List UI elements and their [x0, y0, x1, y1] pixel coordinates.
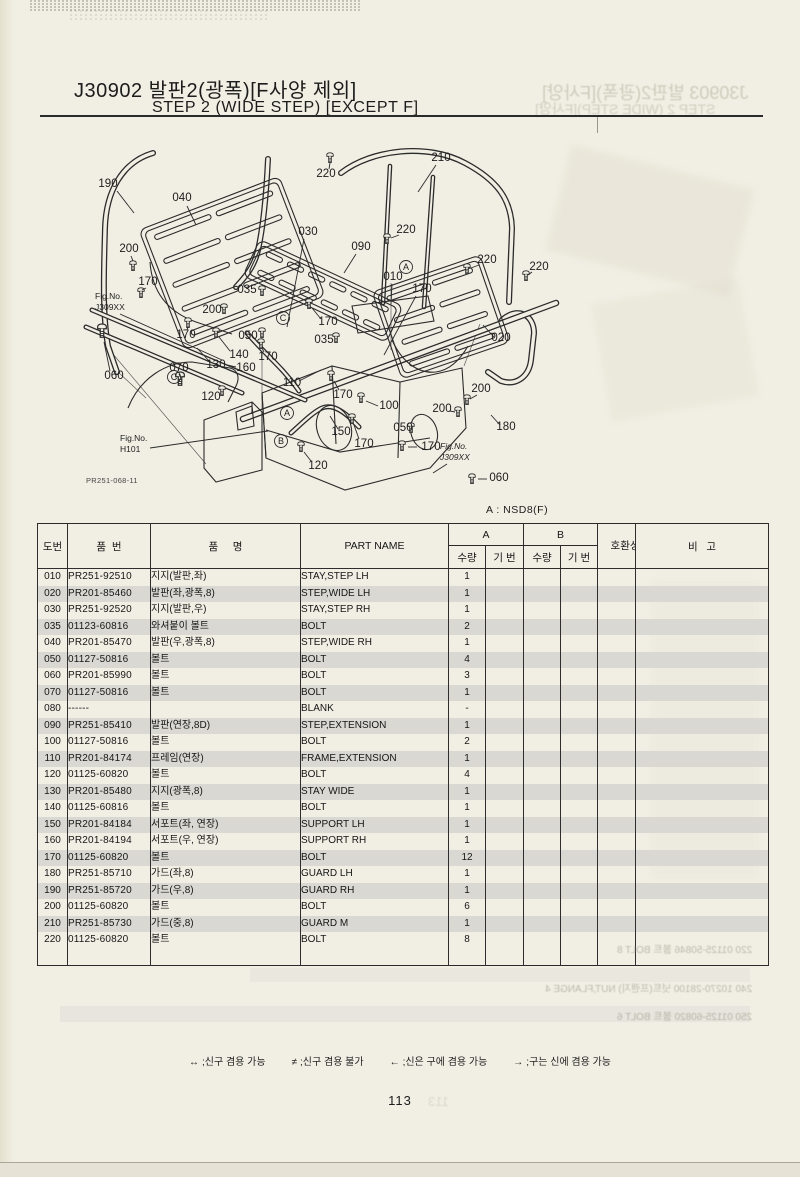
part-label: 050 — [238, 330, 257, 342]
cell-name-kr: 지지(발판,우) — [151, 602, 301, 619]
bolt-icon — [327, 153, 333, 163]
cell-part-name: FRAME,EXTENSION — [301, 751, 449, 768]
svg-text:H101: H101 — [120, 444, 141, 454]
svg-text:Fig.No.: Fig.No. — [440, 441, 467, 451]
legend-item: →;구는 신에 겸용 가능 — [513, 1053, 611, 1068]
frame-extension-110 — [236, 303, 556, 430]
cell-serial-a — [486, 619, 524, 636]
cell-qty-a: 1 — [449, 883, 486, 900]
cell-compat — [598, 866, 636, 883]
part-label: 200 — [471, 383, 490, 395]
drawing-number: PR251-068-11 — [86, 476, 138, 485]
cell-qty-b — [524, 685, 561, 702]
table-row: 03501123-60816와셔붙이 볼트BOLT2 — [38, 619, 769, 636]
col-header-serial-a: 기 번 — [486, 546, 524, 569]
cell-serial-a — [486, 767, 524, 784]
cell-part-no: PR201-85460 — [68, 586, 151, 603]
table-row: 10001127-50816볼트BOLT2 — [38, 734, 769, 751]
leader-line — [391, 235, 399, 238]
leader-line — [299, 370, 321, 381]
cell-compat — [598, 619, 636, 636]
cell-no: 160 — [38, 833, 68, 850]
cell-name-kr: 가드(우,8) — [151, 883, 301, 900]
cell-serial-b — [561, 916, 598, 933]
part-label: 050 — [393, 422, 412, 434]
cell-name-kr: 서포트(우, 연장) — [151, 833, 301, 850]
part-label: 170 — [412, 283, 431, 295]
cell-no: 120 — [38, 767, 68, 784]
table-row: 110PR201-84174프레임(연장)FRAME,EXTENSION1 — [38, 751, 769, 768]
cell-qty-b — [524, 586, 561, 603]
cell-serial-a — [486, 883, 524, 900]
col-header-qty-a: 수량 — [449, 546, 486, 569]
legend-item: ≠;신구 겸용 불가 — [292, 1053, 364, 1068]
cell-qty-b — [524, 734, 561, 751]
col-header-group-a: A — [449, 524, 524, 546]
cell-remark — [636, 866, 769, 883]
compatibility-legend: ↔;신구 겸용 가능≠;신구 겸용 불가←;신은 구에 겸용 가능→;구는 신에… — [0, 1053, 800, 1068]
cell-part-name: GUARD LH — [301, 866, 449, 883]
svg-text:B: B — [278, 436, 284, 446]
part-label: 220 — [396, 224, 415, 236]
cell-compat — [598, 784, 636, 801]
cell-compat — [598, 883, 636, 900]
cell-qty-b — [524, 784, 561, 801]
cell-name-kr: 볼트 — [151, 734, 301, 751]
svg-text:Fig.No.: Fig.No. — [95, 291, 122, 301]
bolt-icon — [464, 264, 470, 274]
cell-serial-a — [486, 602, 524, 619]
col-header-name-kr: 품 명 — [151, 524, 301, 569]
leader-line — [366, 401, 378, 406]
leader-line — [471, 265, 479, 268]
connector-mark: A — [400, 261, 413, 274]
cell-serial-b — [561, 817, 598, 834]
cell-name-kr: 볼트 — [151, 932, 301, 949]
cell-serial-b — [561, 586, 598, 603]
catalog-page: J30903 발판2(광폭)[F사양] STEP 2 (WIDE STEP)[F… — [0, 0, 800, 1177]
connector-mark: C — [168, 371, 181, 384]
cell-remark — [636, 652, 769, 669]
cell-remark — [636, 668, 769, 685]
col-header-compat: 호환성 — [598, 524, 636, 569]
cell-serial-a — [486, 718, 524, 735]
cell-part-name: BOLT — [301, 850, 449, 867]
parts-table: 도번 품 번 품 명 PART NAME A B 호환성 비 고 수량 기 번 … — [37, 523, 769, 966]
table-row: 17001125-60820볼트BOLT12 — [38, 850, 769, 867]
cell-part-name: STAY WIDE — [301, 784, 449, 801]
cell-compat — [598, 734, 636, 751]
cell-no: 050 — [38, 652, 68, 669]
cell-qty-a: 4 — [449, 767, 486, 784]
svg-text:J309XX: J309XX — [95, 302, 125, 312]
part-label: 170 — [138, 276, 157, 288]
leader-line — [179, 374, 180, 376]
bolt-icon — [176, 372, 185, 385]
page-binding-shade — [0, 0, 14, 1177]
cell-part-name: STEP,WIDE LH — [301, 586, 449, 603]
cell-qty-b — [524, 866, 561, 883]
tread-panel — [243, 239, 403, 342]
cell-serial-a — [486, 569, 524, 586]
leader-line — [131, 256, 133, 261]
table-row: 080------BLANK- — [38, 701, 769, 718]
col-header-qty-b: 수량 — [524, 546, 561, 569]
step-fender-curves — [150, 262, 468, 372]
cell-qty-a: 1 — [449, 833, 486, 850]
cell-part-name: BOLT — [301, 734, 449, 751]
fig-ref: Fig.No.J309XX — [95, 291, 222, 360]
cell-remark — [636, 800, 769, 817]
cell-name-kr: 가드(중,8) — [151, 916, 301, 933]
cell-part-no: PR201-85480 — [68, 784, 151, 801]
cell-serial-b — [561, 718, 598, 735]
bolt-icon — [306, 299, 312, 309]
cell-remark — [636, 883, 769, 900]
part-label: 190 — [98, 178, 117, 190]
cell-no: 080 — [38, 701, 68, 718]
cell-name-kr: 발판(연장,8D) — [151, 718, 301, 735]
ghost-row: 240 10270-28100 넛트(프랜지) NUT,FLANGE 4 — [545, 980, 752, 995]
cell-name-kr — [151, 701, 301, 718]
cell-qty-b — [524, 701, 561, 718]
leader-line — [262, 348, 264, 352]
cell-serial-b — [561, 800, 598, 817]
svg-text:A: A — [403, 262, 409, 272]
part-label: 200 — [432, 403, 451, 415]
table-row: 090PR251-85410발판(연장,8D)STEP,EXTENSION1 — [38, 718, 769, 735]
chassis-frame-h101 — [128, 362, 466, 490]
leader-line — [329, 163, 330, 169]
cell-part-no: 01123-60816 — [68, 619, 151, 636]
cell-part-no: 01127-50816 — [68, 685, 151, 702]
cell-no: 130 — [38, 784, 68, 801]
part-label: 170 — [318, 316, 337, 328]
cell-serial-a — [486, 899, 524, 916]
svg-text:A: A — [284, 408, 290, 418]
cell-no: 140 — [38, 800, 68, 817]
bolt-icon — [130, 261, 136, 271]
col-header-part-name: PART NAME — [301, 524, 449, 569]
cell-qty-a: 1 — [449, 718, 486, 735]
cell-serial-a — [486, 751, 524, 768]
cell-qty-a: 1 — [449, 817, 486, 834]
part-label: 100 — [379, 400, 398, 412]
cell-part-name: STEP,WIDE RH — [301, 635, 449, 652]
tread-panel — [139, 176, 325, 349]
parts-table-body: 010PR251-92510지지(발판,좌)STAY,STEP LH1020PR… — [38, 569, 769, 966]
cell-part-name: SUPPORT RH — [301, 833, 449, 850]
bolt-icon — [469, 474, 475, 484]
cell-qty-b — [524, 718, 561, 735]
cell-qty-a: 1 — [449, 602, 486, 619]
part-label: 110 — [283, 377, 301, 389]
part-label: 170 — [258, 351, 277, 363]
cell-qty-a: 1 — [449, 635, 486, 652]
bolt-icon — [259, 286, 265, 296]
cell-compat — [598, 668, 636, 685]
cell-name-kr: 볼트 — [151, 850, 301, 867]
cell-no: 100 — [38, 734, 68, 751]
bolt-icon — [358, 393, 364, 403]
cell-name-kr: 지지(발판,좌) — [151, 569, 301, 586]
part-label: 120 — [308, 460, 327, 472]
cell-no: 170 — [38, 850, 68, 867]
cell-serial-a — [486, 784, 524, 801]
cell-remark — [636, 850, 769, 867]
part-label: 150 — [331, 426, 350, 438]
leader-line — [354, 425, 359, 439]
cell-part-no: 01127-50816 — [68, 734, 151, 751]
cell-serial-b — [561, 767, 598, 784]
part-label: 170 — [333, 389, 352, 401]
cell-qty-b — [524, 899, 561, 916]
cell-remark — [636, 734, 769, 751]
leader-line — [483, 325, 494, 337]
cell-remark — [636, 767, 769, 784]
cell-serial-a — [486, 800, 524, 817]
cell-serial-b — [561, 635, 598, 652]
page-number: 113 — [0, 1093, 800, 1108]
cell-remark — [636, 619, 769, 636]
leader-line — [344, 254, 356, 273]
cell-name-kr: 서포트(좌, 연장) — [151, 817, 301, 834]
cell-part-name: BOLT — [301, 800, 449, 817]
cell-no: 180 — [38, 866, 68, 883]
cell-compat — [598, 833, 636, 850]
cell-compat — [598, 916, 636, 933]
cell-compat — [598, 817, 636, 834]
part-label: 140 — [229, 349, 248, 361]
cell-no: 210 — [38, 916, 68, 933]
cell-qty-b — [524, 850, 561, 867]
cell-qty-a: 1 — [449, 569, 486, 586]
table-row: 180PR251-85710가드(좌,8)GUARD LH1 — [38, 866, 769, 883]
support-tubes — [247, 333, 359, 433]
tread-panel — [372, 255, 510, 379]
cell-no: 070 — [38, 685, 68, 702]
cell-part-name: BOLT — [301, 899, 449, 916]
cell-name-kr: 볼트 — [151, 767, 301, 784]
cell-qty-b — [524, 602, 561, 619]
cell-part-no: 01125-60820 — [68, 767, 151, 784]
part-label: 170 — [176, 329, 195, 341]
bolt-icon — [399, 441, 405, 451]
leader-line — [450, 411, 455, 412]
cell-compat — [598, 701, 636, 718]
table-row: 20001125-60820볼트BOLT6 — [38, 899, 769, 916]
cell-remark — [636, 701, 769, 718]
leader-line — [470, 395, 477, 399]
col-header-no: 도번 — [38, 524, 68, 569]
table-row: 160PR201-84194서포트(우, 연장)SUPPORT RH1 — [38, 833, 769, 850]
cell-qty-b — [524, 916, 561, 933]
cell-remark — [636, 586, 769, 603]
svg-text:C: C — [171, 372, 178, 382]
part-number-labels: 1900402001700300902202102202202200101700… — [98, 152, 548, 484]
legend-item: ←;신은 구에 겸용 가능 — [390, 1053, 488, 1068]
cell-serial-b — [561, 668, 598, 685]
part-label: 220 — [529, 261, 548, 273]
part-label: 130 — [206, 359, 225, 371]
cell-part-name: BOLT — [301, 767, 449, 784]
cell-compat — [598, 586, 636, 603]
cell-no: 200 — [38, 899, 68, 916]
cell-part-no: PR251-85710 — [68, 866, 151, 883]
svg-text:Fig.No.: Fig.No. — [120, 433, 147, 443]
col-header-part-no: 품 번 — [68, 524, 151, 569]
cell-name-kr: 볼트 — [151, 800, 301, 817]
cell-remark — [636, 569, 769, 586]
cell-qty-b — [524, 932, 561, 949]
table-row: 190PR251-85720가드(우,8)GUARD RH1 — [38, 883, 769, 900]
cell-no: 220 — [38, 932, 68, 949]
leader-line — [312, 308, 321, 319]
cell-no: 040 — [38, 635, 68, 652]
cell-part-no: PR201-84184 — [68, 817, 151, 834]
cell-part-no: PR251-85730 — [68, 916, 151, 933]
cell-part-no: 01125-60820 — [68, 932, 151, 949]
cell-serial-b — [561, 833, 598, 850]
cell-part-name: BOLT — [301, 932, 449, 949]
scan-noise-2 — [70, 10, 270, 20]
leader-line — [227, 365, 236, 367]
ghost-page-number: 113 — [428, 1094, 449, 1109]
cell-part-no: ------ — [68, 701, 151, 718]
cell-compat — [598, 767, 636, 784]
part-label: 220 — [477, 254, 496, 266]
table-row: 14001125-60816볼트BOLT1 — [38, 800, 769, 817]
cell-qty-b — [524, 668, 561, 685]
cell-part-no: 01127-50816 — [68, 652, 151, 669]
cell-name-kr: 지지(광폭,8) — [151, 784, 301, 801]
cell-name-kr: 볼트 — [151, 685, 301, 702]
cell-serial-a — [486, 652, 524, 669]
bolt-icon — [98, 324, 107, 337]
leader-line — [491, 415, 500, 425]
part-label: 120 — [201, 391, 220, 403]
bolt-icon — [349, 414, 355, 424]
cell-qty-b — [524, 619, 561, 636]
cell-qty-a: 1 — [449, 916, 486, 933]
cell-part-no: PR201-85470 — [68, 635, 151, 652]
part-label: 030 — [298, 226, 317, 238]
table-row: 030PR251-92520지지(발판,우)STAY,STEP RH1 — [38, 602, 769, 619]
cell-qty-b — [524, 751, 561, 768]
cell-name-kr: 발판(좌,광폭,8) — [151, 586, 301, 603]
table-row: 130PR201-85480지지(광폭,8)STAY WIDE1 — [38, 784, 769, 801]
connector-mark: B — [275, 435, 288, 448]
cell-remark — [636, 685, 769, 702]
part-label: 210 — [431, 152, 450, 164]
cell-compat — [598, 569, 636, 586]
cell-part-name: GUARD M — [301, 916, 449, 933]
cell-no: 090 — [38, 718, 68, 735]
leader-line — [528, 272, 532, 275]
guard-rh-tube-190 — [104, 153, 268, 372]
cell-qty-a: 1 — [449, 784, 486, 801]
cell-name-kr: 볼트 — [151, 899, 301, 916]
leader-line — [384, 296, 416, 355]
cell-serial-a — [486, 817, 524, 834]
cell-serial-b — [561, 619, 598, 636]
part-label: 200 — [202, 304, 221, 316]
svg-text:C: C — [280, 313, 287, 323]
cell-remark — [636, 751, 769, 768]
cell-qty-a: 2 — [449, 734, 486, 751]
cell-serial-b — [561, 932, 598, 949]
cell-remark — [636, 718, 769, 735]
part-label: 200 — [119, 243, 138, 255]
table-row: 010PR251-92510지지(발판,좌)STAY,STEP LH1 — [38, 569, 769, 586]
bolt-icon — [219, 386, 225, 396]
part-label: 170 — [421, 441, 440, 453]
connector-mark: A — [281, 407, 294, 420]
leader-line — [330, 416, 338, 429]
table-row: 12001125-60820볼트BOLT4 — [38, 767, 769, 784]
guard-m-tube-210 — [341, 151, 512, 333]
cell-qty-b — [524, 883, 561, 900]
cell-compat — [598, 850, 636, 867]
leader-line — [287, 239, 304, 327]
cell-serial-a — [486, 668, 524, 685]
title-rule — [40, 115, 763, 117]
bolt-icon — [259, 328, 265, 338]
cell-serial-b — [561, 751, 598, 768]
cell-compat — [598, 635, 636, 652]
cell-qty-b — [524, 833, 561, 850]
cell-part-name: SUPPORT LH — [301, 817, 449, 834]
leader-line — [219, 337, 230, 351]
cell-qty-b — [524, 817, 561, 834]
cell-serial-b — [561, 701, 598, 718]
bolt-icon — [185, 318, 191, 328]
leader-line — [334, 381, 339, 390]
cell-name-kr: 프레임(연장) — [151, 751, 301, 768]
col-header-remark: 비 고 — [636, 524, 769, 569]
part-label: 090 — [351, 241, 370, 253]
cell-compat — [598, 751, 636, 768]
cell-remark — [636, 817, 769, 834]
leader-lines — [104, 163, 532, 479]
cell-serial-b — [561, 850, 598, 867]
cell-part-no: PR201-84174 — [68, 751, 151, 768]
bolt-icon — [523, 271, 529, 281]
leader-line — [117, 191, 134, 213]
cell-serial-a — [486, 701, 524, 718]
figure-references: ACCABFig.No.J309XXFig.No.H101Fig.No.J309… — [86, 261, 470, 486]
cell-serial-b — [561, 602, 598, 619]
svg-text:J309XX: J309XX — [439, 452, 470, 462]
part-label: 035 — [314, 334, 333, 346]
cell-no: 110 — [38, 751, 68, 768]
part-label: 040 — [172, 192, 191, 204]
cell-serial-b — [561, 784, 598, 801]
cell-compat — [598, 652, 636, 669]
cell-qty-a: 1 — [449, 751, 486, 768]
bolt-icon — [408, 423, 414, 433]
connector-mark: C — [277, 312, 290, 325]
table-row: 040PR201-85470발판(우,광폭,8)STEP,WIDE RH1 — [38, 635, 769, 652]
cell-serial-a — [486, 685, 524, 702]
col-header-group-b: B — [524, 524, 598, 546]
cell-part-no: 01125-60820 — [68, 850, 151, 867]
cell-no: 035 — [38, 619, 68, 636]
cell-compat — [598, 602, 636, 619]
bolt-icon — [298, 442, 304, 452]
tread-panels — [139, 176, 510, 379]
bolt-icon — [455, 407, 461, 417]
